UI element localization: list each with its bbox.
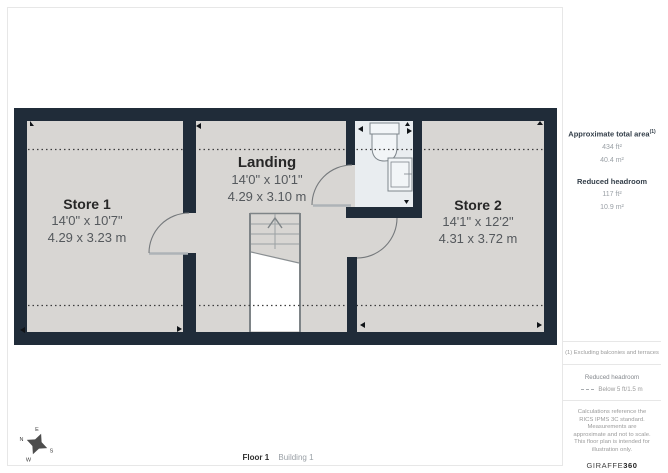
dashed-line-sample [581,389,594,390]
total-area-metric: 40.4 m² [563,154,661,167]
footnote-text: (1) Excluding balconies and terraces [565,350,659,356]
compass-south-label: S [50,449,54,455]
legend-title: Reduced headroom [563,373,661,382]
legend-section: Reduced headroom Below 5 ft/1.5 m [563,364,661,400]
legend-value: Below 5 ft/1.5 m [598,386,642,393]
sink-icon [388,158,412,191]
floor-label: Floor 1 [242,453,269,462]
compass-east-label: E [35,427,39,433]
info-sidebar: Approximate total area(1) 434 ft² 40.4 m… [562,7,661,466]
compass-west-label: W [26,458,32,464]
area-summary-section: Approximate total area(1) 434 ft² 40.4 m… [563,7,661,341]
stair-void [251,252,299,331]
giraffe360-logo: GIRAFFE360 [571,461,653,470]
reduced-headroom-imperial: 117 ft² [563,188,661,201]
disclaimer-section: Calculations reference the RICS IPMS 3C … [563,400,661,466]
disclaimer-text: Calculations reference the RICS IPMS 3C … [571,409,653,455]
footnote-marker: (1) [650,129,656,135]
floor-indicator: Floor 1 Building 1 [218,453,338,462]
building-label: Building 1 [278,453,313,462]
total-area-label: Approximate total area(1) [563,126,661,141]
compass-icon: E N S W [20,427,54,464]
reduced-headroom-label: Reduced headroom [563,176,661,188]
toilet-icon [370,123,399,161]
compass-north-label: N [20,437,24,443]
reduced-headroom-metric: 10.9 m² [563,201,661,214]
footnote-section: (1) Excluding balconies and terraces [563,341,661,364]
total-area-imperial: 434 ft² [563,141,661,154]
